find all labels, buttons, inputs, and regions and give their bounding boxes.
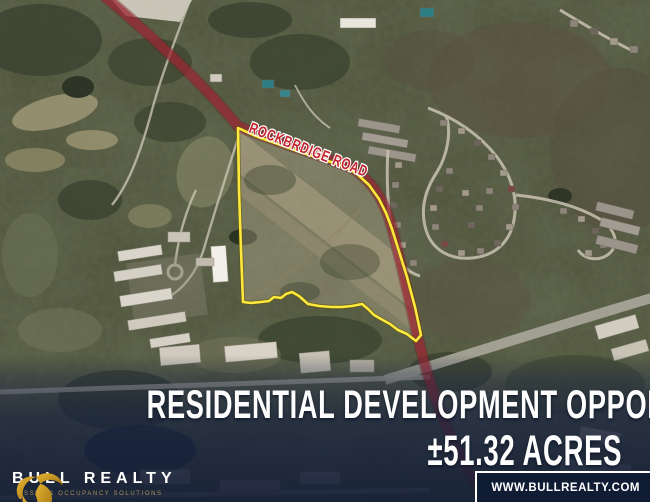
headline-line1: RESIDENTIAL DEVELOPMENT OPPORTUNITY	[0, 383, 650, 428]
property-aerial-poster: ROCKBRDIGE ROAD RESIDENTIAL DEVELOPMENT …	[0, 0, 650, 502]
website-url: WWW.BULLREALTY.COM	[491, 482, 640, 494]
headline-line2-text: ±51.32 ACRES	[427, 427, 622, 476]
bull-head-icon	[12, 470, 74, 502]
brand-logo: BULL REALTY ASSET & OCCUPANCY SOLUTIONS	[12, 470, 177, 497]
headline-line1-text: RESIDENTIAL DEVELOPMENT OPPORTUNITY	[147, 383, 650, 428]
headline-line2: ±51.32 ACRES	[318, 427, 622, 476]
website-box: WWW.BULLREALTY.COM	[475, 471, 650, 502]
